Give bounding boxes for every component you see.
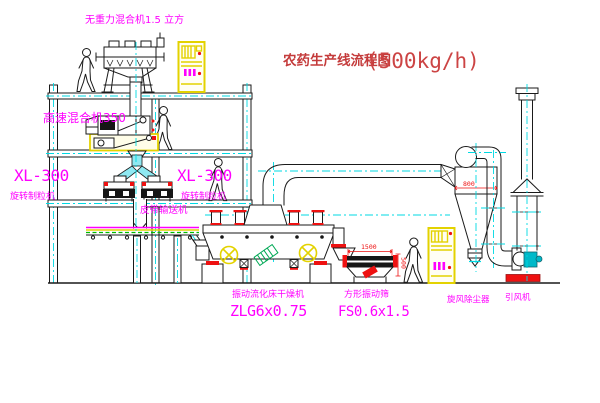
label-fan: 引风机 [505, 292, 531, 303]
induced-draft-fan [506, 248, 542, 282]
label-sieve-model: FS0.6x1.5 [338, 304, 409, 320]
dim-cyclone-width: 800 [463, 180, 475, 188]
title-capacity: (500kg/h) [366, 49, 480, 73]
rotary-granulator-left [103, 176, 135, 201]
pesticide-line-flow-diagram: 农药生产线流程图 (500kg/h) 无重力混合机1.5 立方 高速混合机350… [0, 0, 600, 403]
label-cyclone: 旋风除尘器 [447, 294, 490, 305]
label-granulator-left-model: XL-300 [14, 166, 69, 185]
label-granulator-right-model: XL-300 [177, 166, 232, 185]
rotary-granulator-right [141, 176, 173, 201]
label-dryer-model: ZLG6x0.75 [230, 302, 307, 320]
dim-sieve-outlet: 500 [400, 257, 408, 269]
label-dryer: 振动流化床干燥机 [232, 288, 304, 300]
exhaust-duct [258, 165, 455, 206]
label-gravity-mixer: 无重力混合机1.5 立方 [85, 13, 184, 26]
control-cabinet [179, 42, 205, 92]
cad-flow-diagram-canvas: 农药生产线流程图 (500kg/h) 无重力混合机1.5 立方 高速混合机350… [0, 0, 600, 403]
label-sieve: 方形振动筛 [344, 288, 389, 300]
cyclone-separator [455, 143, 497, 272]
label-granulator-left: 旋转制粒机 [10, 190, 55, 202]
label-high-speed-mixer: 高速混合机350 [43, 110, 126, 125]
label-granulator-right: 旋转制粒机 [181, 190, 226, 202]
belt-conveyor [86, 228, 206, 284]
control-cabinet [429, 228, 455, 283]
person-figure [77, 49, 95, 92]
dim-sieve-length: 1500 [361, 243, 377, 251]
label-belt-conveyor: 皮带输送机 [140, 204, 188, 216]
